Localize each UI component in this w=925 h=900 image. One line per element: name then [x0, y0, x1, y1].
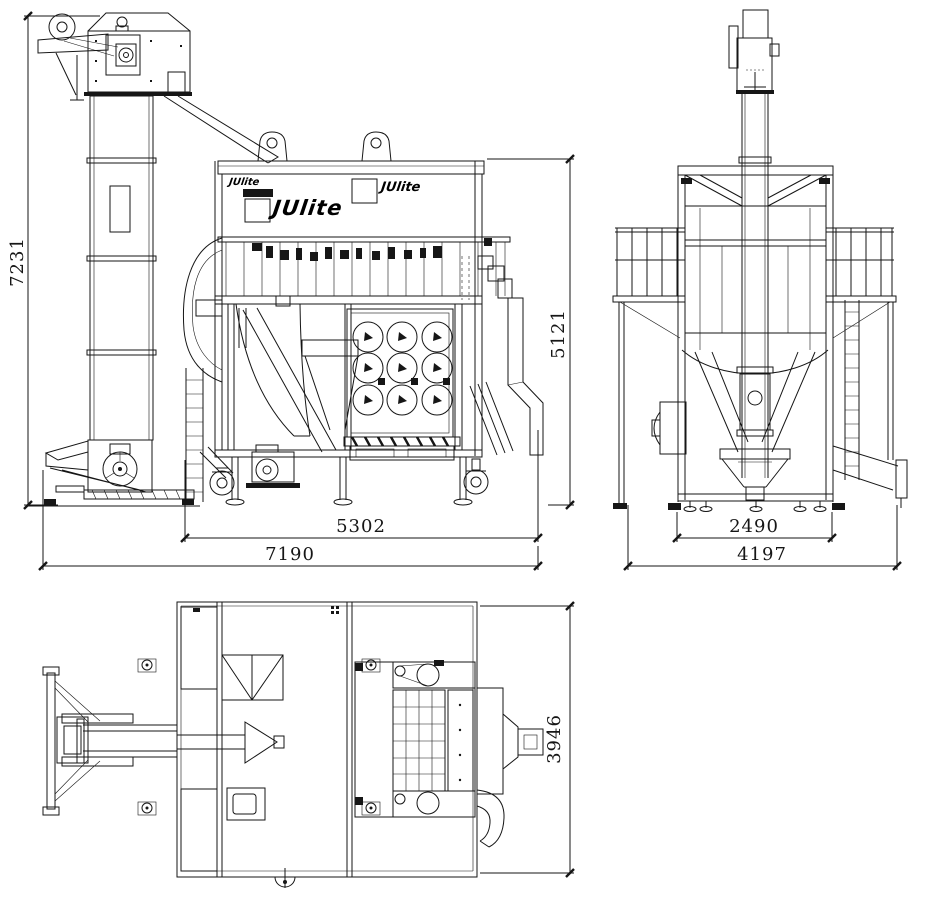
- feed-arm-assembly: [43, 667, 284, 815]
- front-view: [24, 12, 574, 570]
- brand-hatch-icon: [245, 199, 270, 222]
- logo-tagline-bar: [243, 189, 273, 197]
- lifting-eyelets-top: [138, 659, 380, 815]
- air-chamber-circle-bank: [347, 309, 453, 437]
- technical-drawing-canvas: 7231 5121 5302 7190 2490 4197 3946 JUlit…: [0, 0, 925, 900]
- dim-side-overall-width: 4197: [722, 546, 802, 564]
- dim-front-overall-height: 7231: [9, 222, 27, 302]
- dim-front-body-width: 5302: [321, 518, 401, 536]
- elevator-side: [729, 10, 779, 478]
- duct-elbow-top: [477, 790, 504, 847]
- machine-body-side: [613, 166, 907, 512]
- blower-side: [660, 402, 686, 454]
- front-ladder: [186, 368, 203, 502]
- brand-hatch-icon: [352, 179, 377, 203]
- dim-top-overall-depth: 3946: [546, 699, 564, 779]
- top-view: [43, 602, 574, 888]
- dim-front-overall-width: 7190: [250, 546, 330, 564]
- fan-motor-top: [518, 729, 543, 755]
- internal-equipment-silhouettes: [252, 238, 492, 261]
- elevator-tube: [87, 96, 156, 440]
- sieve-deck-top: [355, 660, 543, 817]
- dim-front-body-height: 5121: [550, 294, 568, 374]
- side-view: [613, 10, 907, 570]
- dim-side-base-width: 2490: [714, 518, 794, 536]
- brand-logo-right: JUlite: [380, 180, 421, 195]
- brand-logo-small: JUlite: [228, 177, 260, 188]
- elevator-head: [38, 13, 278, 163]
- elevator-boot: [28, 440, 200, 506]
- three-view-line-drawing: [0, 0, 925, 900]
- brand-logo-large: JUlite: [271, 196, 344, 220]
